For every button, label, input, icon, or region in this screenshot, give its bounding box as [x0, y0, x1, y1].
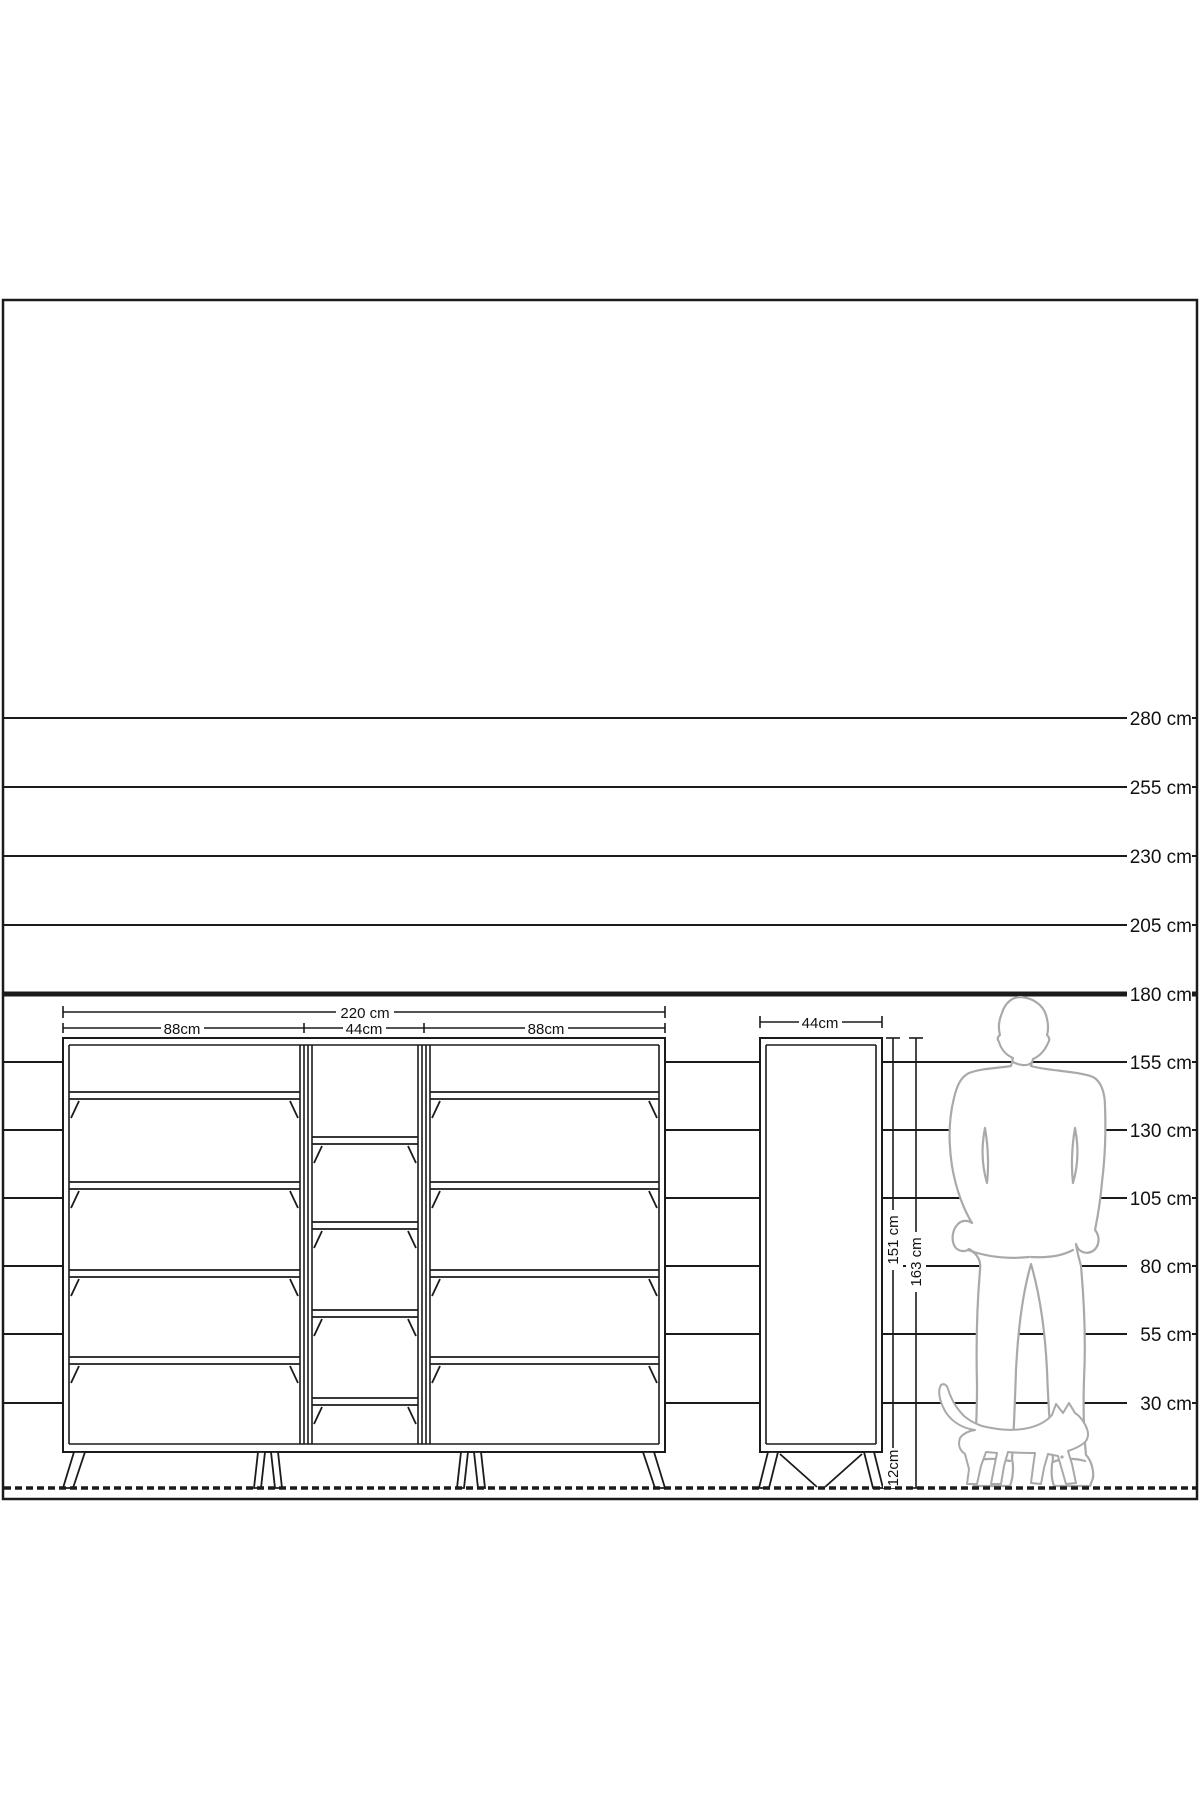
height-label-180: 180 cm	[1130, 985, 1192, 1006]
furniture-dimension-drawing: 220 cm 88cm 44cm 88cm 44cm	[0, 0, 1200, 1800]
height-label-255: 255 cm	[1130, 778, 1192, 799]
front-cabinet-left-section-label: 88cm	[164, 1021, 201, 1038]
height-label-130: 130 cm	[1130, 1121, 1192, 1142]
height-label-205: 205 cm	[1130, 916, 1192, 937]
height-label-280: 280 cm	[1130, 709, 1192, 730]
side-cabinet-total-height-label: 163 cm	[908, 1237, 925, 1286]
front-cabinet-middle-section-label: 44cm	[346, 1021, 383, 1038]
side-cabinet-body	[760, 1038, 882, 1452]
height-label-55: 55 cm	[1140, 1325, 1192, 1346]
height-label-155: 155 cm	[1130, 1053, 1192, 1074]
front-cabinet-right-section-label: 88cm	[528, 1021, 565, 1038]
front-cabinet-elevation: 220 cm 88cm 44cm 88cm	[63, 1002, 665, 1488]
front-cabinet-body	[63, 1038, 665, 1452]
side-cabinet-width-label: 44cm	[802, 1015, 839, 1032]
side-cabinet-body-height-label: 151 cm	[885, 1215, 902, 1264]
height-label-105: 105 cm	[1130, 1189, 1192, 1210]
height-label-230: 230 cm	[1130, 847, 1192, 868]
height-label-80: 80 cm	[1140, 1257, 1192, 1278]
cat-marking-dot	[1060, 1455, 1063, 1458]
side-cabinet-leg-height-label: 12cm	[885, 1450, 902, 1487]
height-label-30: 30 cm	[1140, 1394, 1192, 1415]
dimension-diagram-page: 220 cm 88cm 44cm 88cm 44cm	[0, 0, 1200, 1800]
